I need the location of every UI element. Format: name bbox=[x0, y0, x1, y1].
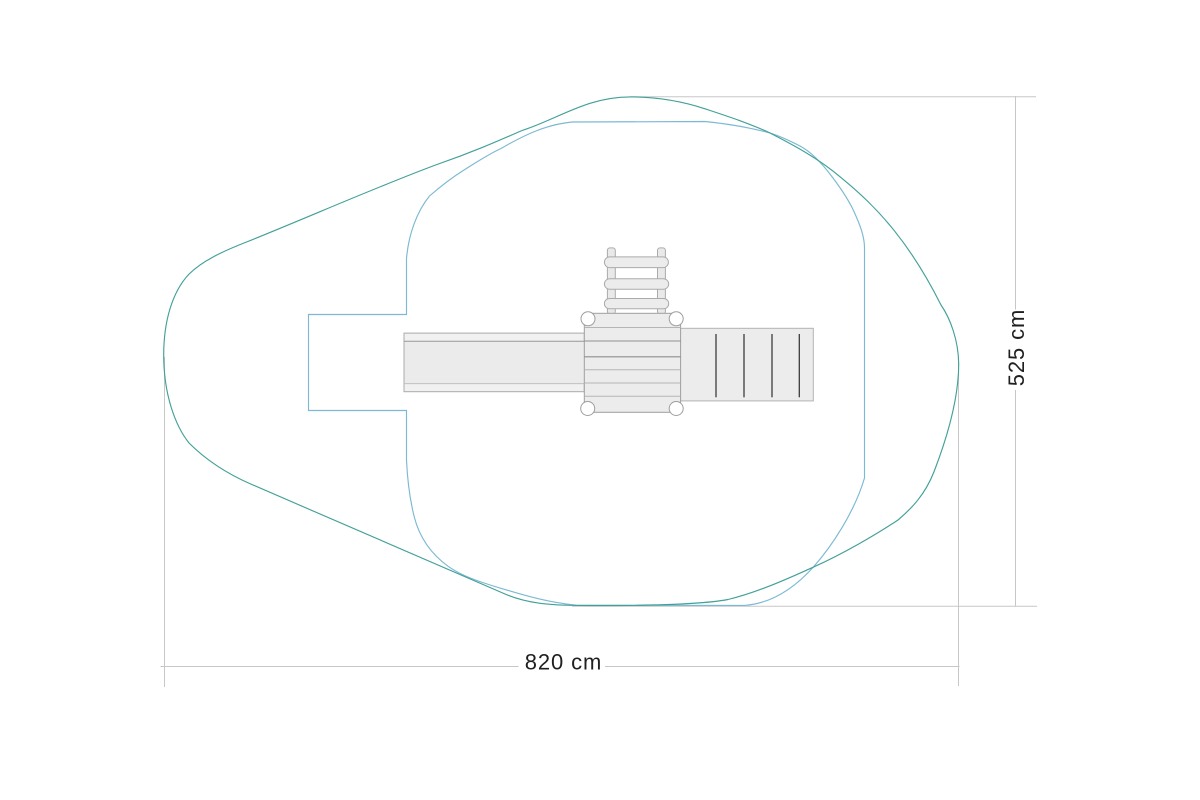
svg-text:820 cm: 820 cm bbox=[525, 650, 603, 675]
svg-text:525 cm: 525 cm bbox=[1004, 309, 1029, 387]
